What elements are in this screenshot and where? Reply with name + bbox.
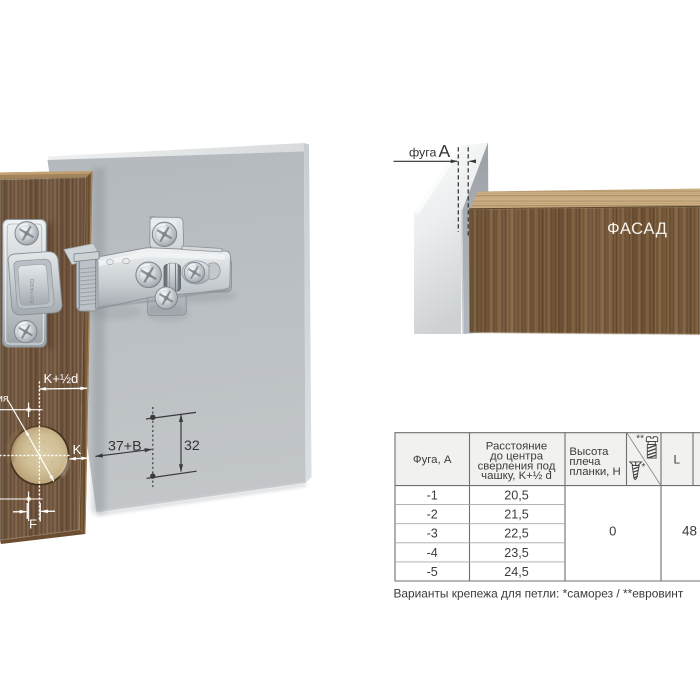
svg-text:48: 48 [682, 523, 697, 538]
svg-text:**: ** [636, 434, 644, 445]
svg-text:K: K [73, 442, 82, 457]
svg-text:23,5: 23,5 [504, 546, 529, 560]
svg-text:-1: -1 [427, 489, 438, 503]
svg-text:планки, Н: планки, Н [569, 466, 620, 478]
svg-text:24,5: 24,5 [504, 565, 529, 579]
svg-text:0: 0 [609, 524, 616, 539]
svg-text:чашку, K+½ d: чашку, K+½ d [481, 470, 552, 482]
svg-text:ия: ия [0, 393, 9, 405]
svg-text:37+B: 37+B [108, 439, 142, 455]
svg-text:*: * [642, 462, 646, 473]
svg-text:Варианты крепежа для петли: *с: Варианты крепежа для петли: *саморез / *… [394, 586, 684, 600]
svg-text:22,5: 22,5 [504, 527, 529, 541]
svg-text:-4: -4 [427, 546, 438, 560]
svg-text:21,5: 21,5 [504, 508, 529, 522]
svg-text:32: 32 [184, 438, 200, 454]
svg-text:BOYARD: BOYARD [30, 278, 36, 303]
svg-text:ФАСАД: ФАСАД [607, 219, 667, 238]
svg-text:фуга: фуга [409, 146, 436, 160]
svg-text:L: L [674, 453, 681, 467]
svg-text:K+½d: K+½d [44, 371, 79, 386]
svg-text:A: A [439, 141, 451, 161]
svg-text:-2: -2 [427, 508, 438, 522]
svg-text:-5: -5 [427, 565, 438, 579]
svg-text:Фуга, А: Фуга, А [413, 454, 452, 466]
svg-text:F: F [29, 517, 37, 532]
svg-text:-3: -3 [427, 527, 438, 541]
svg-text:20,5: 20,5 [504, 489, 529, 503]
